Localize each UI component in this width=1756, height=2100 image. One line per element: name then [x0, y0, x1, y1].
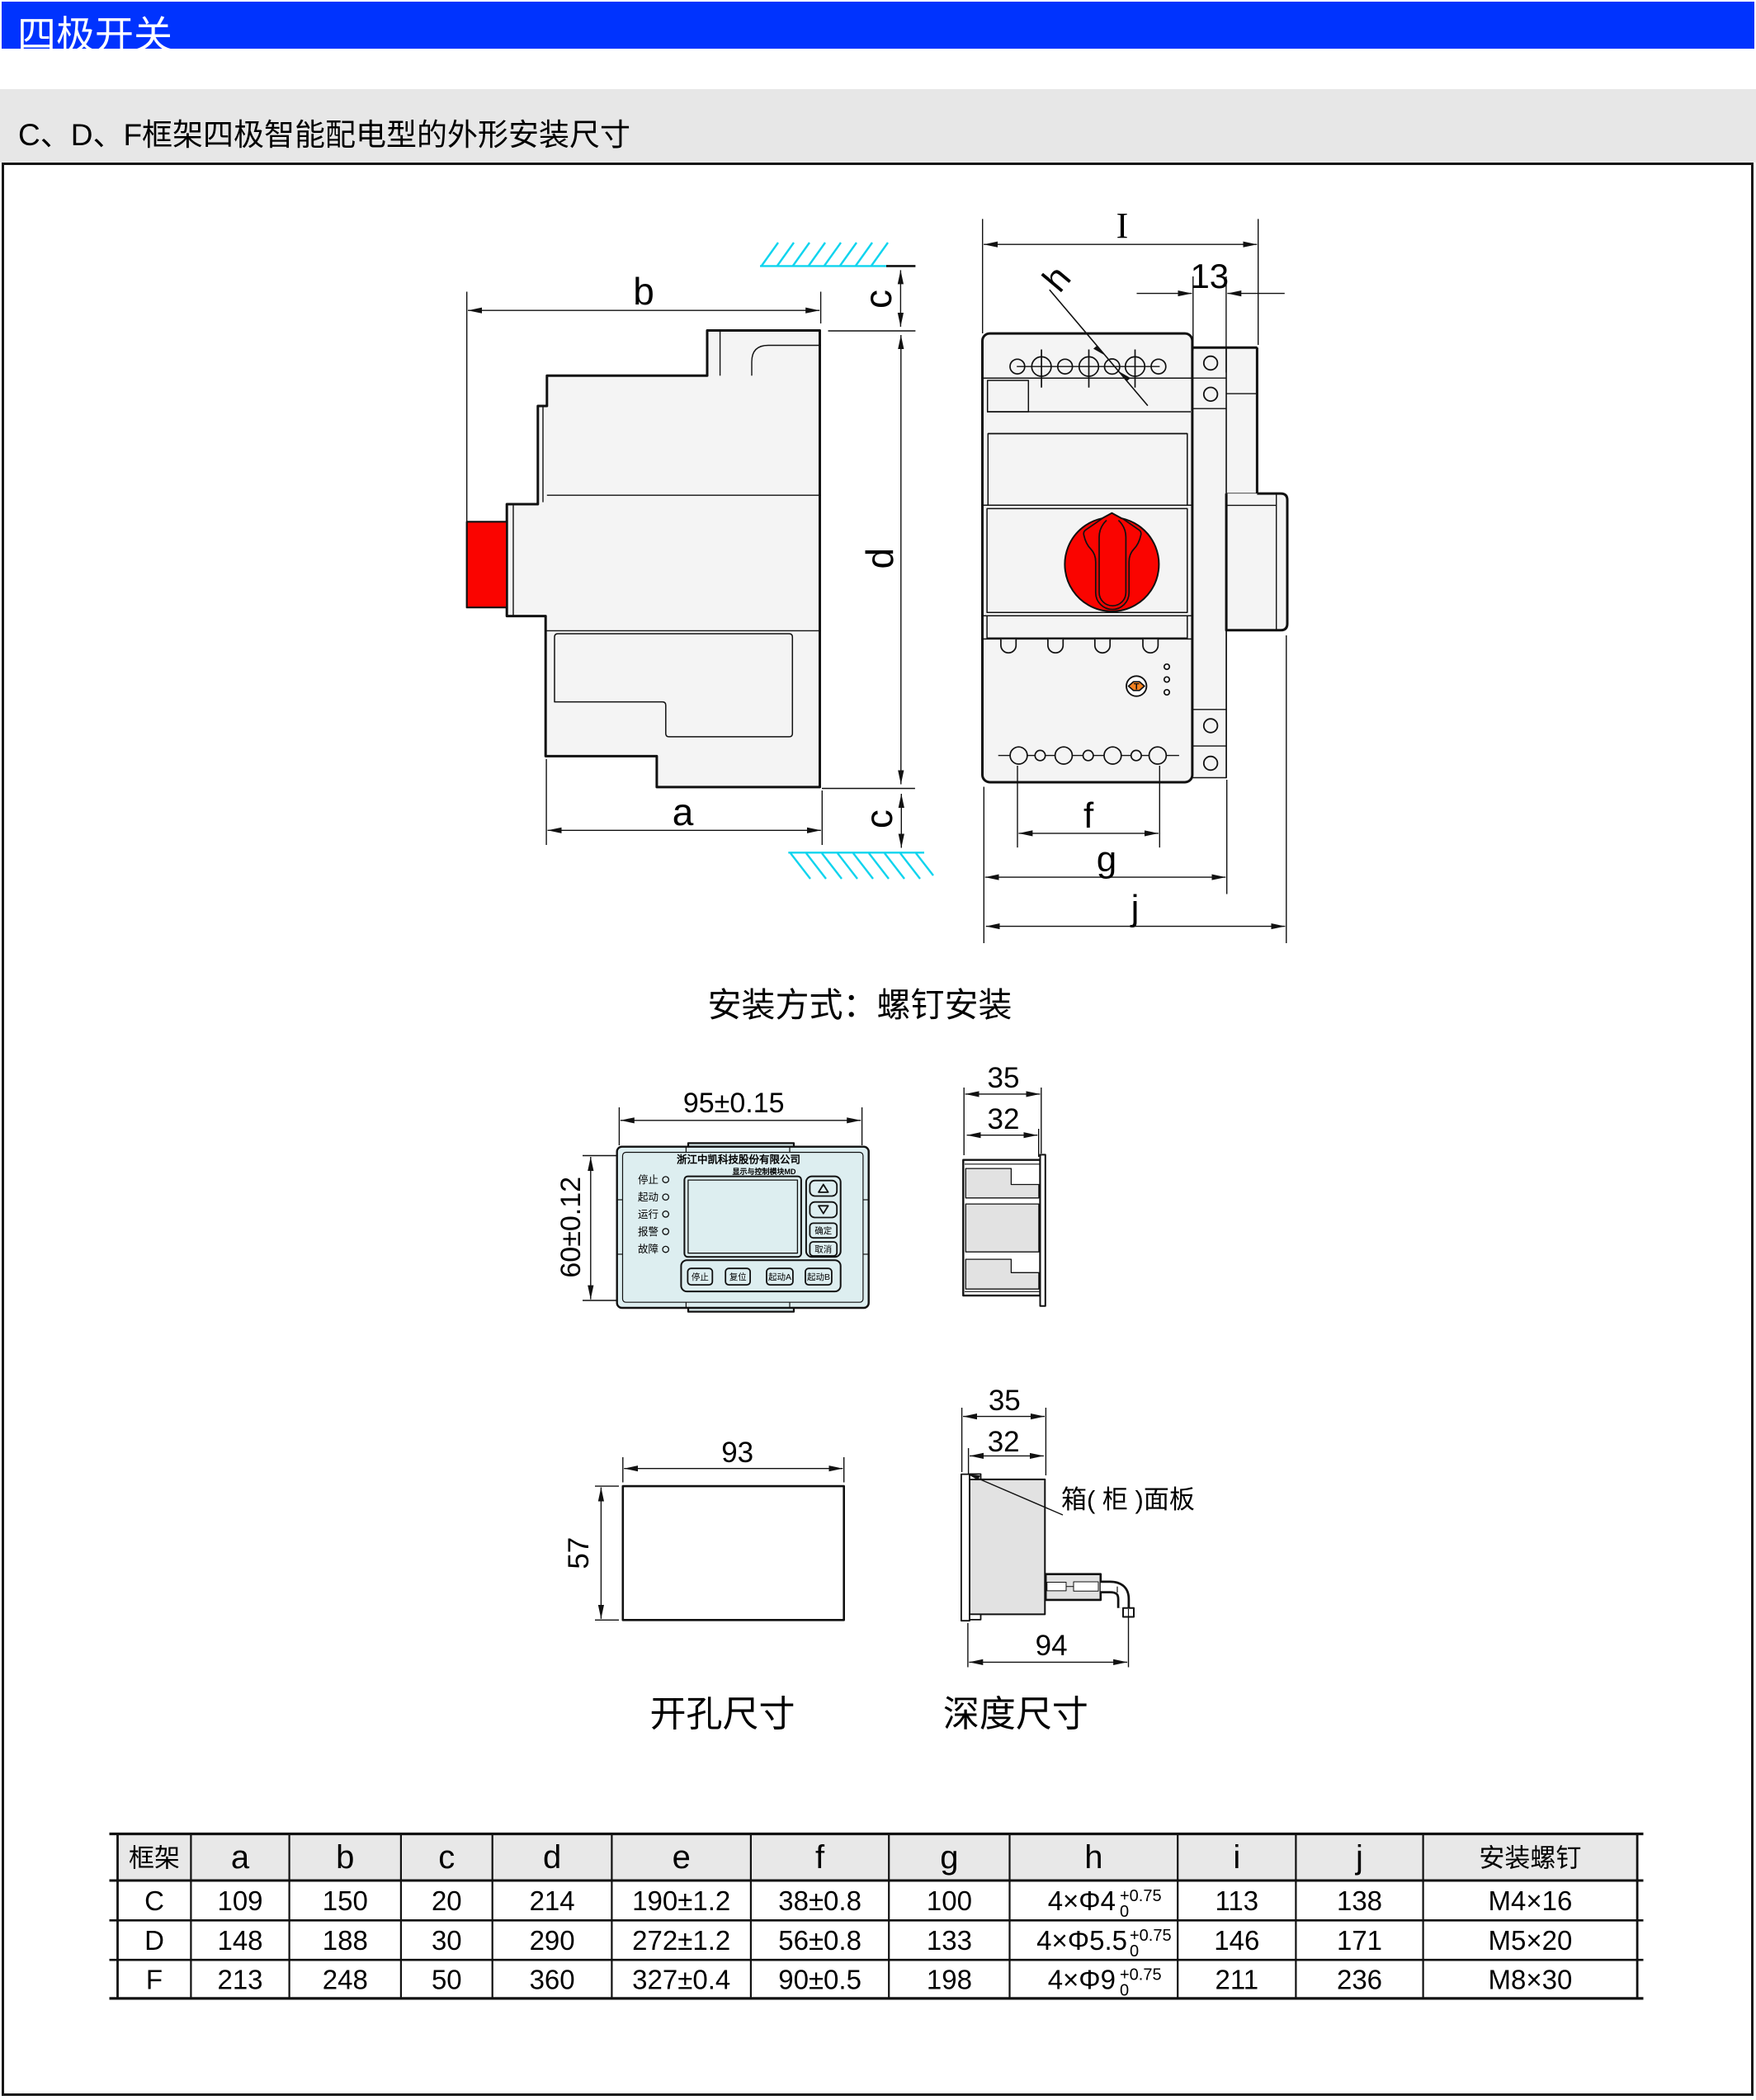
svg-text:箱( 柜 )面板: 箱( 柜 )面板 — [1061, 1485, 1195, 1514]
svg-text:90±0.5: 90±0.5 — [778, 1964, 861, 1994]
svg-text:显示与控制模块MD: 显示与控制模块MD — [733, 1167, 796, 1176]
svg-text:93: 93 — [721, 1437, 753, 1469]
svg-text:故障: 故障 — [638, 1243, 658, 1255]
svg-text:g: g — [940, 1839, 958, 1876]
svg-text:32: 32 — [988, 1426, 1020, 1458]
svg-text:深度尺寸: 深度尺寸 — [943, 1694, 1088, 1734]
svg-text:报警: 报警 — [638, 1225, 658, 1238]
svg-text:4×Φ4: 4×Φ4 — [1048, 1885, 1116, 1916]
svg-text:起动A: 起动A — [768, 1272, 791, 1282]
svg-text:C: C — [144, 1885, 164, 1916]
svg-text:起动: 起动 — [638, 1192, 658, 1203]
svg-text:f: f — [1083, 795, 1094, 836]
svg-text:开孔尺寸: 开孔尺寸 — [650, 1694, 795, 1734]
svg-text:35: 35 — [988, 1062, 1020, 1094]
svg-text:38±0.8: 38±0.8 — [778, 1885, 861, 1916]
svg-text:150: 150 — [323, 1885, 368, 1916]
svg-text:浙江中凯科技股份有限公司: 浙江中凯科技股份有限公司 — [677, 1154, 800, 1166]
svg-text:198: 198 — [927, 1964, 972, 1994]
svg-text:d: d — [543, 1839, 561, 1876]
svg-text:109: 109 — [217, 1885, 262, 1916]
svg-text:M4×16: M4×16 — [1488, 1885, 1572, 1916]
svg-text:95±0.15: 95±0.15 — [683, 1088, 785, 1119]
svg-text:327±0.4: 327±0.4 — [632, 1964, 730, 1994]
svg-text:复位: 复位 — [729, 1272, 747, 1282]
svg-text:0: 0 — [1130, 1942, 1139, 1961]
svg-text:c: c — [857, 290, 899, 309]
svg-text:D: D — [144, 1925, 164, 1956]
svg-text:146: 146 — [1214, 1925, 1259, 1956]
svg-text:a: a — [231, 1839, 250, 1876]
svg-text:M8×30: M8×30 — [1488, 1964, 1572, 1994]
svg-text:0: 0 — [1120, 1981, 1129, 1999]
svg-text:a: a — [673, 790, 694, 833]
svg-text:32: 32 — [988, 1103, 1020, 1135]
svg-text:248: 248 — [323, 1964, 368, 1994]
svg-text:214: 214 — [530, 1885, 575, 1916]
svg-text:133: 133 — [927, 1925, 972, 1956]
svg-text:i: i — [1233, 1839, 1240, 1876]
svg-text:290: 290 — [530, 1925, 575, 1956]
svg-text:j: j — [1130, 888, 1140, 928]
svg-text:c: c — [438, 1839, 455, 1876]
svg-text:确定: 确定 — [814, 1225, 832, 1236]
svg-text:56±0.8: 56±0.8 — [778, 1925, 861, 1956]
svg-text:50: 50 — [432, 1964, 462, 1994]
svg-text:20: 20 — [432, 1885, 462, 1916]
svg-text:安装方式：螺钉安装: 安装方式：螺钉安装 — [708, 986, 1013, 1024]
svg-text:起动B: 起动B — [807, 1272, 830, 1282]
svg-text:138: 138 — [1337, 1885, 1382, 1916]
svg-text:13: 13 — [1190, 257, 1229, 295]
svg-text:停止: 停止 — [692, 1272, 709, 1282]
svg-text:0: 0 — [1120, 1903, 1129, 1921]
svg-text:h: h — [1084, 1839, 1102, 1876]
svg-text:M5×20: M5×20 — [1488, 1925, 1572, 1956]
svg-text:b: b — [633, 270, 654, 313]
svg-text:190±1.2: 190±1.2 — [632, 1885, 730, 1916]
svg-text:T: T — [1134, 682, 1140, 692]
svg-text:213: 213 — [217, 1964, 262, 1994]
svg-text:360: 360 — [530, 1964, 575, 1994]
svg-text:安装螺钉: 安装螺钉 — [1479, 1844, 1581, 1873]
svg-text:60±0.12: 60±0.12 — [555, 1177, 587, 1278]
svg-text:4×Φ5.5: 4×Φ5.5 — [1036, 1925, 1127, 1956]
svg-text:停止: 停止 — [638, 1173, 658, 1186]
svg-text:框架: 框架 — [129, 1844, 180, 1873]
svg-text:100: 100 — [927, 1885, 972, 1916]
svg-text:113: 113 — [1215, 1885, 1258, 1916]
svg-text:171: 171 — [1337, 1925, 1382, 1956]
svg-text:b: b — [336, 1839, 354, 1876]
svg-text:g: g — [1097, 839, 1116, 880]
svg-text:57: 57 — [563, 1537, 595, 1569]
svg-text:j: j — [1355, 1839, 1363, 1876]
svg-text:35: 35 — [989, 1385, 1021, 1417]
svg-text:F: F — [146, 1964, 163, 1994]
svg-text:f: f — [815, 1839, 825, 1876]
svg-text:30: 30 — [432, 1925, 462, 1956]
svg-text:取消: 取消 — [814, 1244, 832, 1255]
svg-text:272±1.2: 272±1.2 — [632, 1925, 730, 1956]
svg-text:188: 188 — [323, 1925, 368, 1956]
svg-text:c: c — [857, 809, 900, 828]
svg-text:148: 148 — [217, 1925, 262, 1956]
svg-text:运行: 运行 — [638, 1209, 658, 1220]
svg-text:d: d — [858, 548, 901, 569]
svg-text:94: 94 — [1036, 1630, 1068, 1662]
svg-text:e: e — [673, 1839, 691, 1876]
svg-text:236: 236 — [1337, 1964, 1382, 1994]
svg-text:211: 211 — [1215, 1964, 1258, 1994]
svg-text:4×Φ9: 4×Φ9 — [1048, 1964, 1116, 1994]
svg-text:h: h — [1035, 258, 1079, 300]
svg-text:I: I — [1116, 205, 1129, 246]
